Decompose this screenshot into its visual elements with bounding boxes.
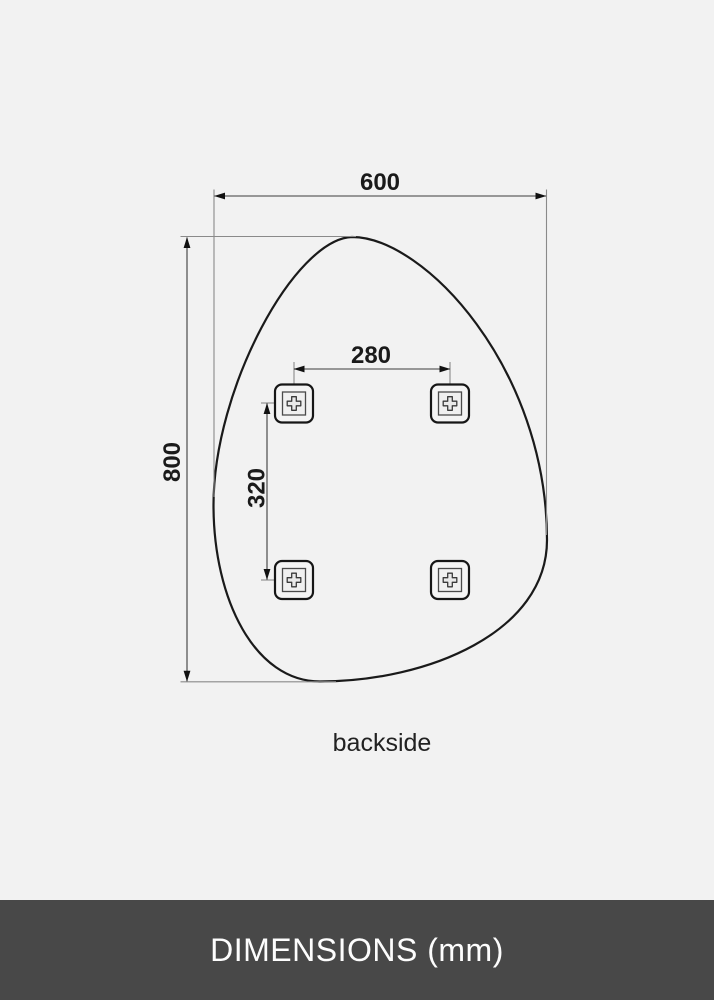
- mounting-brackets: [275, 385, 469, 600]
- footer-bar: DIMENSIONS (mm): [0, 900, 714, 1000]
- mounting-bracket-top-left: [275, 385, 313, 423]
- hole-spacing-horizontal-label: 280: [351, 342, 391, 369]
- mounting-bracket-top-right: [431, 385, 469, 423]
- height-dimension-label: 800: [159, 442, 186, 482]
- backside-caption: backside: [333, 729, 432, 757]
- extension-lines: [181, 190, 547, 682]
- mirror-dimension-diagram-page: 600 800 280 320: [0, 0, 714, 1000]
- hole-spacing-vertical-label: 320: [244, 468, 271, 508]
- dimension-lines: [187, 196, 546, 681]
- footer-title: DIMENSIONS (mm): [210, 932, 504, 969]
- mounting-bracket-bottom-left: [275, 561, 313, 599]
- mounting-bracket-bottom-right: [431, 561, 469, 599]
- mirror-outline: [214, 237, 548, 682]
- width-dimension-label: 600: [360, 169, 400, 196]
- diagram-canvas: 600 800 280 320: [0, 0, 714, 900]
